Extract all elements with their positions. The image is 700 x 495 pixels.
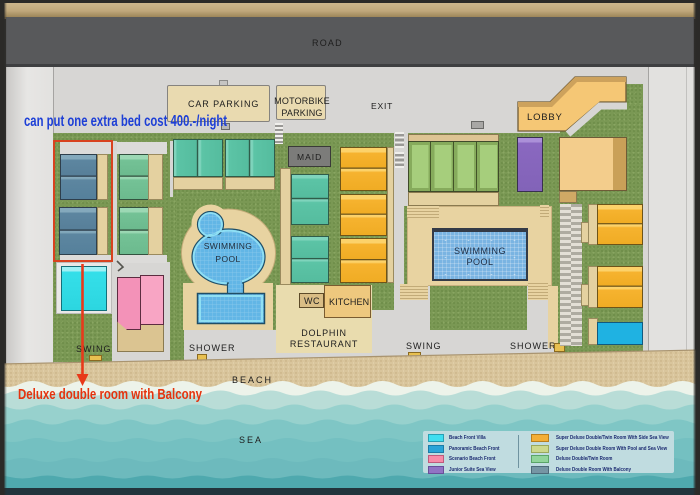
svg-text:BEACH: BEACH [232, 375, 273, 385]
svg-text:SEA: SEA [239, 435, 263, 445]
svg-text:POOL: POOL [215, 254, 240, 264]
svg-text:SWIMMING: SWIMMING [204, 241, 253, 251]
svg-text:LOBBY: LOBBY [527, 112, 563, 123]
